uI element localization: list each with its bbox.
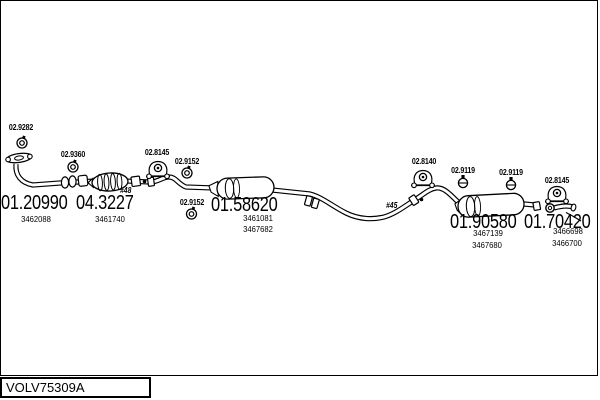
part-number[interactable]: 01.20990 xyxy=(1,192,67,215)
bolt-clamp-icon xyxy=(506,177,515,190)
oe-number: 3467680 xyxy=(472,241,502,250)
hardware-label: 02.9282 xyxy=(9,124,33,132)
gasket-ring-icon xyxy=(68,160,78,172)
oe-number: 3461081 xyxy=(243,214,273,223)
catalog-code: VOLV75309A xyxy=(6,380,85,395)
hardware-label: 02.9152 xyxy=(175,158,199,166)
hardware-label: 02.9360 xyxy=(61,151,85,159)
oe-number: 3466700 xyxy=(552,239,582,248)
diagram-marker: #48 xyxy=(120,187,131,195)
rubber-hanger-icon xyxy=(545,187,569,204)
hardware-label: 02.9119 xyxy=(451,167,475,175)
oe-number: 3467682 xyxy=(243,225,273,234)
bolt-clamp-icon xyxy=(458,175,467,188)
oe-number: 3461740 xyxy=(95,215,125,224)
hardware-label: 02.8140 xyxy=(412,158,436,166)
hardware-label: 02.9119 xyxy=(499,169,523,177)
rubber-hanger-icon xyxy=(411,171,435,188)
front-flange xyxy=(5,152,33,164)
clamp-ring-icon xyxy=(187,207,197,219)
hardware-label: 02.9152 xyxy=(180,199,204,207)
catalog-page: 02.9282 02.9360 02.8145 02.9152 02.9152 … xyxy=(0,0,600,400)
oe-number: 3462088 xyxy=(21,215,51,224)
hardware-label: 02.8145 xyxy=(545,177,569,185)
hardware-label: 02.8145 xyxy=(145,149,169,157)
rubber-hanger-icon xyxy=(146,162,170,179)
oe-number: 3466698 xyxy=(553,227,583,236)
clamp-ring-icon xyxy=(182,166,192,178)
catalog-code-box: VOLV75309A xyxy=(0,377,151,398)
gasket-ring-icon xyxy=(17,136,27,148)
diagram-marker: #45 xyxy=(386,202,397,210)
oe-number: 3467139 xyxy=(473,229,503,238)
part-number[interactable]: 04.3227 xyxy=(76,192,134,215)
